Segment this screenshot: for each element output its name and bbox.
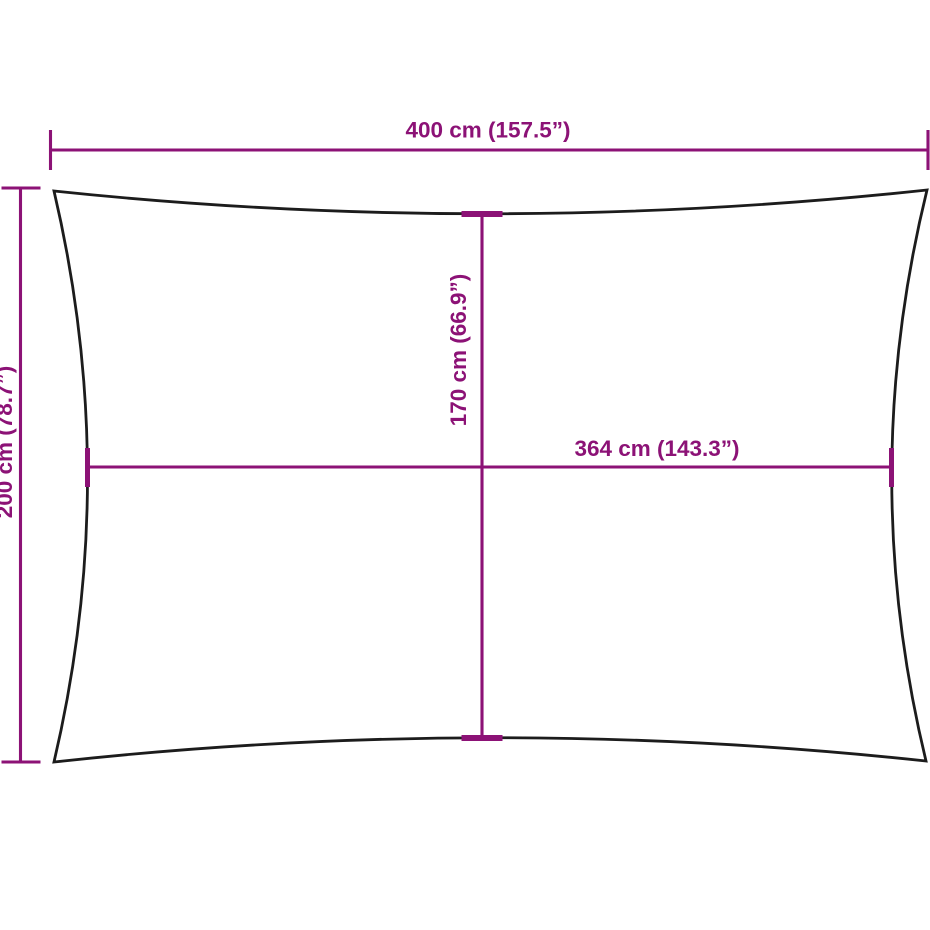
svg-text:170 cm (66.9”): 170 cm (66.9”)	[446, 274, 471, 427]
svg-text:200 cm (78.7”): 200 cm (78.7”)	[0, 366, 17, 519]
svg-text:364 cm (143.3”): 364 cm (143.3”)	[574, 436, 739, 461]
svg-text:400 cm (157.5”): 400 cm (157.5”)	[405, 118, 570, 143]
